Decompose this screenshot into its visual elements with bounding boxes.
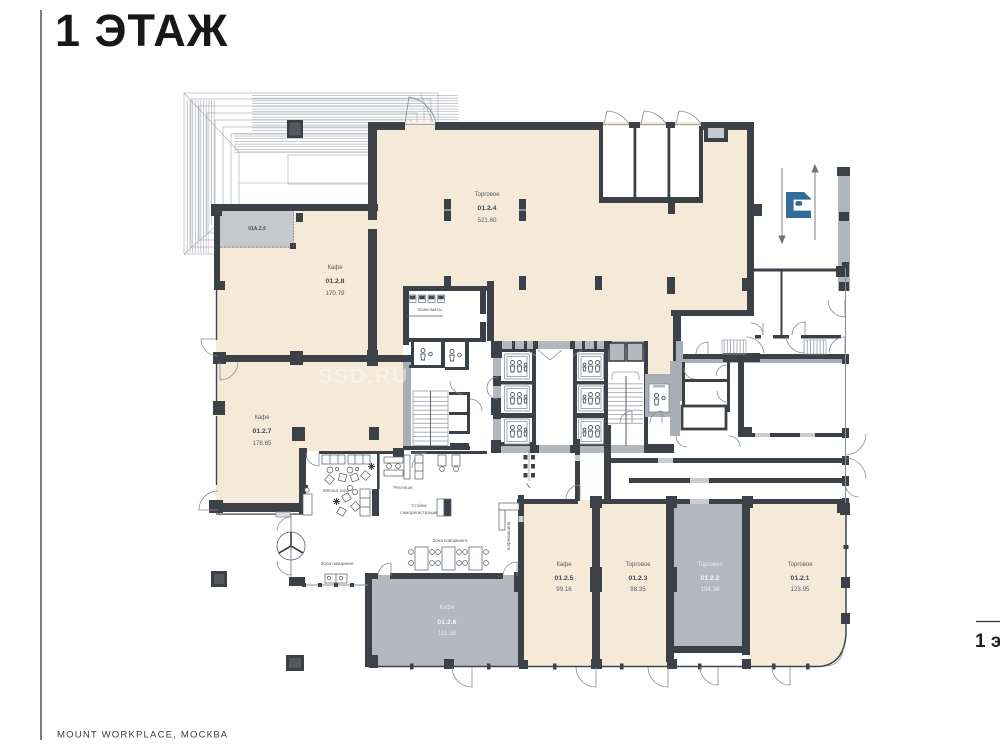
svg-text:123.95: 123.95 — [791, 586, 810, 593]
svg-text:111.58: 111.58 — [438, 630, 457, 637]
svg-text:01.2.7: 01.2.7 — [253, 428, 272, 435]
svg-text:01А.2.9: 01А.2.9 — [248, 226, 266, 232]
svg-text:Торговое: Торговое — [474, 192, 500, 198]
svg-text:Кафе: Кафе — [327, 265, 343, 271]
svg-text:01.2.4: 01.2.4 — [478, 205, 497, 212]
svg-text:саморегистрации: саморегистрации — [400, 510, 438, 515]
svg-text:104.36: 104.36 — [701, 586, 720, 593]
svg-text:01.2.5: 01.2.5 — [555, 575, 574, 582]
svg-text:Торговое: Торговое — [787, 562, 813, 568]
svg-text:Мягкая зона: Мягкая зона — [323, 488, 350, 493]
svg-text:98.35: 98.35 — [630, 586, 646, 593]
svg-text:Зона ожидания: Зона ожидания — [321, 561, 354, 566]
svg-text:1 эт: 1 эт — [975, 631, 1000, 652]
svg-text:1 ЭТАЖ: 1 ЭТАЖ — [55, 5, 228, 56]
svg-text:Кофемашина: Кофемашина — [506, 521, 511, 550]
svg-text:01.2.1: 01.2.1 — [791, 575, 810, 582]
svg-text:Зона коворкинга: Зона коворкинга — [432, 538, 467, 543]
svg-text:170.79: 170.79 — [326, 290, 345, 297]
svg-text:Кафе: Кафе — [556, 562, 572, 568]
svg-text:Кафе: Кафе — [254, 415, 270, 421]
svg-text:SSD.RU: SSD.RU — [318, 365, 409, 388]
svg-text:Торговое: Торговое — [697, 562, 723, 568]
svg-text:01.2.3: 01.2.3 — [629, 575, 648, 582]
svg-text:01.2.6: 01.2.6 — [438, 619, 457, 626]
svg-text:Торговое: Торговое — [625, 562, 651, 568]
svg-text:178.65: 178.65 — [253, 440, 272, 447]
svg-text:01.2.8: 01.2.8 — [326, 278, 345, 285]
svg-text:MOUNT WORKPLACE, МОСКВА: MOUNT WORKPLACE, МОСКВА — [57, 730, 228, 741]
svg-text:Стойка: Стойка — [411, 502, 427, 508]
svg-text:99.16: 99.16 — [556, 586, 572, 593]
svg-text:Ресепшн: Ресепшн — [394, 485, 413, 490]
svg-text:Кафе: Кафе — [439, 605, 455, 611]
svg-text:01.2.2: 01.2.2 — [701, 575, 720, 582]
svg-text:521.60: 521.60 — [478, 217, 497, 224]
svg-text:Банкоматы: Банкоматы — [418, 307, 442, 312]
